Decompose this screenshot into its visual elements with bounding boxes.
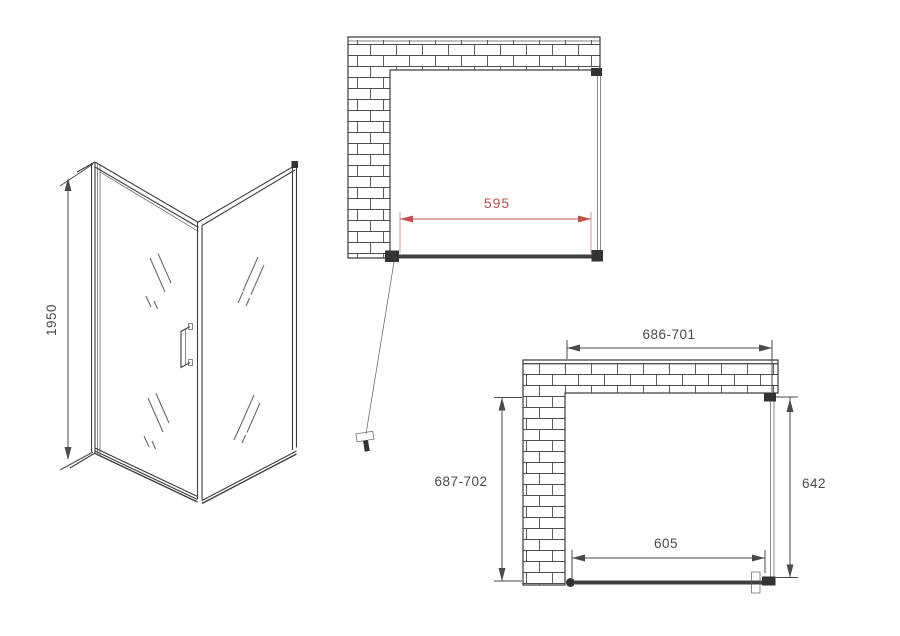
hinge-block: [385, 251, 399, 263]
isometric-view: 1950: [44, 161, 298, 504]
height-dimension-label: 1950: [44, 304, 59, 336]
side-panel-plan: [591, 68, 602, 252]
left-depth-dimension: 687-702: [434, 398, 522, 582]
glass-width-label: 605: [654, 536, 678, 551]
left-depth-label: 687-702: [434, 474, 487, 489]
right-depth-dimension: 642: [774, 397, 826, 578]
door-panel-plan: [566, 572, 776, 593]
opening-width-label: 686-701: [642, 327, 695, 342]
frame-top-cap: [292, 161, 299, 168]
door-panel-plan: [385, 250, 603, 262]
side-panel: [198, 161, 299, 504]
corner-connector: [762, 577, 776, 586]
door-width-label: 595: [484, 195, 510, 211]
height-dimension: 1950: [44, 164, 93, 470]
wall-connector: [764, 393, 776, 402]
glass-width-dimension: 605: [572, 536, 765, 578]
brick-wall: [523, 360, 778, 585]
side-panel-plan: [764, 393, 776, 578]
glass-reflection-marks: [234, 257, 264, 443]
right-depth-label: 642: [802, 476, 826, 491]
technical-drawing-canvas: 1950: [0, 0, 900, 636]
door-panel: [95, 162, 202, 502]
corner-connector: [592, 250, 604, 262]
brick-wall: [348, 37, 600, 258]
wall-connector: [591, 68, 602, 76]
wall-profile-left: [70, 162, 100, 468]
glass-reflection-marks: [144, 254, 171, 450]
door-handle: [181, 324, 193, 368]
door-width-dimension: 595: [400, 195, 591, 253]
hinge-knob: [566, 578, 575, 587]
door-swing: [356, 262, 394, 453]
bottom-plan-view: 686-701 687-702 642 605: [434, 327, 826, 593]
